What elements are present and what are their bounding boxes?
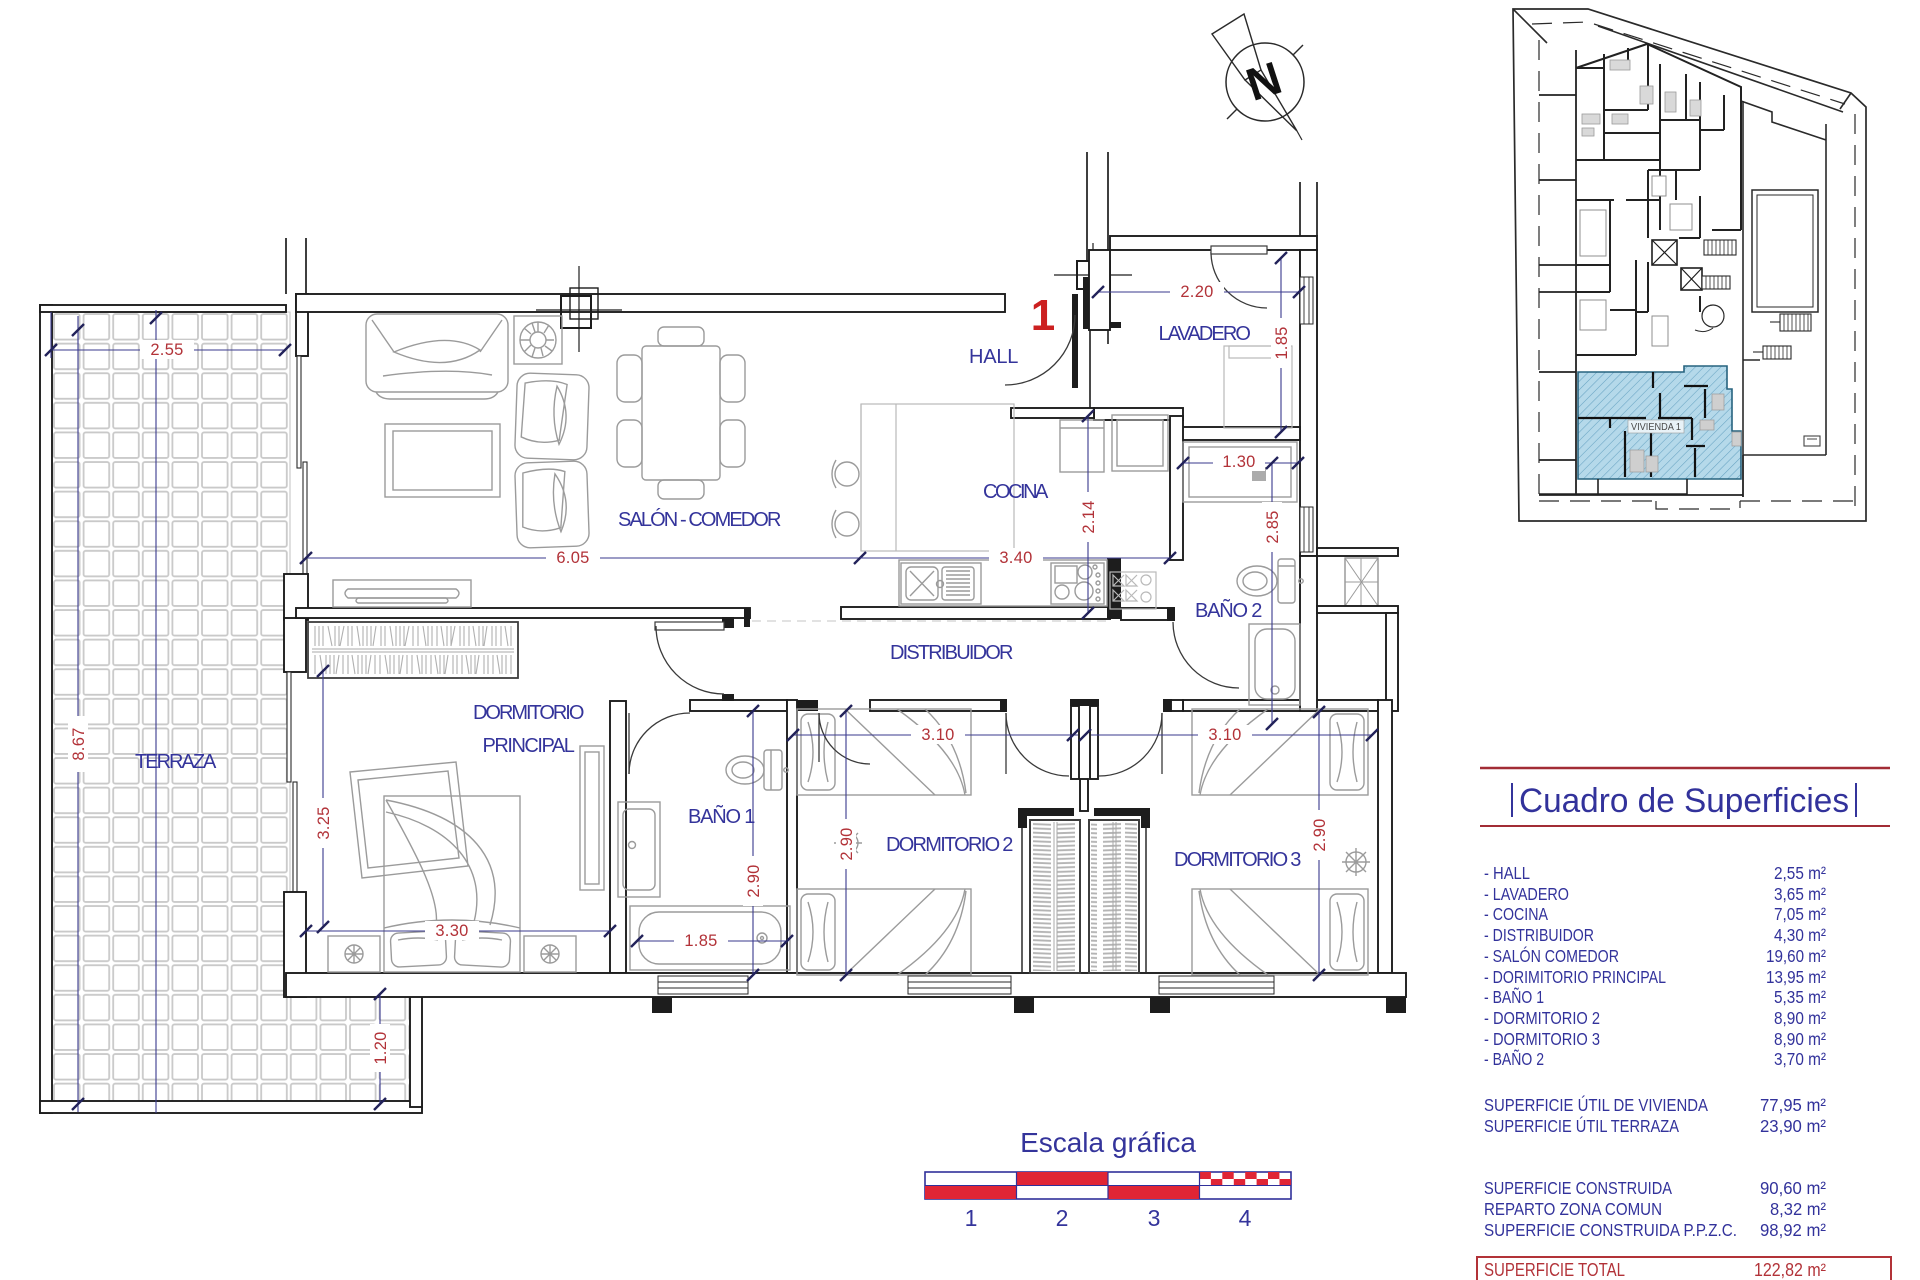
svg-text:6.05: 6.05 — [556, 549, 589, 567]
svg-text:Escala gráfica: Escala gráfica — [1020, 1127, 1196, 1158]
svg-text:23,90 m²: 23,90 m² — [1760, 1116, 1826, 1136]
svg-text:SUPERFICIE CONSTRUIDA P.P.Z.C.: SUPERFICIE CONSTRUIDA P.P.Z.C. — [1484, 1220, 1737, 1240]
svg-text:1: 1 — [965, 1205, 978, 1231]
svg-text:SUPERFICIE ÚTIL TERRAZA: SUPERFICIE ÚTIL TERRAZA — [1484, 1115, 1679, 1136]
svg-text:3.25: 3.25 — [315, 806, 333, 839]
svg-text:- BAÑO 2: - BAÑO 2 — [1484, 1048, 1544, 1069]
svg-text:- SALÓN COMEDOR: - SALÓN COMEDOR — [1484, 945, 1619, 966]
svg-text:COCINA: COCINA — [983, 481, 1049, 503]
svg-text:2.14: 2.14 — [1080, 500, 1098, 533]
svg-text:2,55 m²: 2,55 m² — [1774, 863, 1826, 883]
svg-text:8.67: 8.67 — [70, 727, 88, 760]
svg-text:7,05 m²: 7,05 m² — [1774, 904, 1826, 924]
svg-text:19,60 m²: 19,60 m² — [1766, 946, 1826, 966]
svg-text:PRINCIPAL: PRINCIPAL — [483, 735, 576, 757]
svg-text:8,32 m²: 8,32 m² — [1770, 1199, 1826, 1219]
svg-text:3,65 m²: 3,65 m² — [1774, 884, 1826, 904]
svg-text:TERRAZA: TERRAZA — [135, 751, 217, 773]
svg-text:- HALL: - HALL — [1484, 863, 1530, 883]
svg-text:SUPERFICIE ÚTIL DE VIVIENDA: SUPERFICIE ÚTIL DE VIVIENDA — [1484, 1094, 1708, 1115]
svg-text:1: 1 — [1031, 291, 1055, 340]
svg-text:77,95 m²: 77,95 m² — [1760, 1095, 1826, 1115]
svg-text:2.20: 2.20 — [1180, 283, 1213, 301]
svg-text:DORMITORIO: DORMITORIO — [473, 702, 585, 724]
svg-text:SUPERFICIE CONSTRUIDA: SUPERFICIE CONSTRUIDA — [1484, 1178, 1672, 1198]
svg-text:5,35 m²: 5,35 m² — [1774, 987, 1826, 1007]
svg-text:BAÑO 2: BAÑO 2 — [1195, 598, 1263, 622]
svg-text:2: 2 — [1056, 1205, 1069, 1231]
svg-text:1.30: 1.30 — [1222, 453, 1255, 471]
svg-text:122,82 m²: 122,82 m² — [1754, 1260, 1826, 1280]
svg-text:- DORMITORIO 2: - DORMITORIO 2 — [1484, 1008, 1600, 1028]
svg-text:13,95 m²: 13,95 m² — [1766, 967, 1826, 987]
svg-text:2.90: 2.90 — [838, 827, 856, 860]
svg-text:4: 4 — [1239, 1205, 1252, 1231]
svg-text:3.10: 3.10 — [1208, 726, 1241, 744]
svg-text:Cuadro de Superficies: Cuadro de Superficies — [1519, 782, 1849, 820]
svg-text:3,70 m²: 3,70 m² — [1774, 1049, 1826, 1069]
svg-text:98,92 m²: 98,92 m² — [1760, 1220, 1826, 1240]
svg-text:4,30 m²: 4,30 m² — [1774, 925, 1826, 945]
svg-text:DORMITORIO 2: DORMITORIO 2 — [886, 834, 1014, 856]
svg-text:- DISTRIBUIDOR: - DISTRIBUIDOR — [1484, 925, 1594, 945]
svg-text:- DORMITORIO 3: - DORMITORIO 3 — [1484, 1029, 1600, 1049]
svg-text:2.85: 2.85 — [1264, 510, 1282, 543]
svg-text:SALÓN - COMEDOR: SALÓN - COMEDOR — [618, 508, 782, 531]
svg-text:BAÑO 1: BAÑO 1 — [688, 804, 756, 828]
svg-text:1.85: 1.85 — [684, 932, 717, 950]
svg-text:8,90 m²: 8,90 m² — [1774, 1008, 1826, 1028]
svg-text:- LAVADERO: - LAVADERO — [1484, 884, 1569, 904]
svg-text:REPARTO ZONA COMUN: REPARTO ZONA COMUN — [1484, 1199, 1662, 1219]
svg-text:HALL: HALL — [969, 346, 1019, 368]
svg-text:- BAÑO 1: - BAÑO 1 — [1484, 986, 1544, 1007]
svg-text:1.20: 1.20 — [372, 1031, 390, 1064]
svg-text:1.85: 1.85 — [1273, 326, 1291, 359]
svg-text:3.40: 3.40 — [999, 549, 1032, 567]
svg-text:8,90 m²: 8,90 m² — [1774, 1029, 1826, 1049]
svg-text:DISTRIBUIDOR: DISTRIBUIDOR — [890, 642, 1014, 664]
svg-text:3.10: 3.10 — [921, 726, 954, 744]
svg-text:VIVIENDA 1: VIVIENDA 1 — [1631, 421, 1681, 433]
svg-text:90,60 m²: 90,60 m² — [1760, 1178, 1826, 1198]
svg-text:2.90: 2.90 — [1311, 818, 1329, 851]
svg-text:LAVADERO: LAVADERO — [1159, 323, 1252, 345]
svg-text:2.90: 2.90 — [745, 864, 763, 897]
svg-text:2.55: 2.55 — [150, 341, 183, 359]
svg-text:3: 3 — [1148, 1205, 1161, 1231]
svg-text:SUPERFICIE TOTAL: SUPERFICIE TOTAL — [1484, 1260, 1625, 1280]
svg-text:- DORIMITORIO PRINCIPAL: - DORIMITORIO PRINCIPAL — [1484, 967, 1666, 987]
svg-text:DORMITORIO 3: DORMITORIO 3 — [1174, 849, 1302, 871]
svg-text:3.30: 3.30 — [435, 922, 468, 940]
svg-text:- COCINA: - COCINA — [1484, 904, 1548, 924]
